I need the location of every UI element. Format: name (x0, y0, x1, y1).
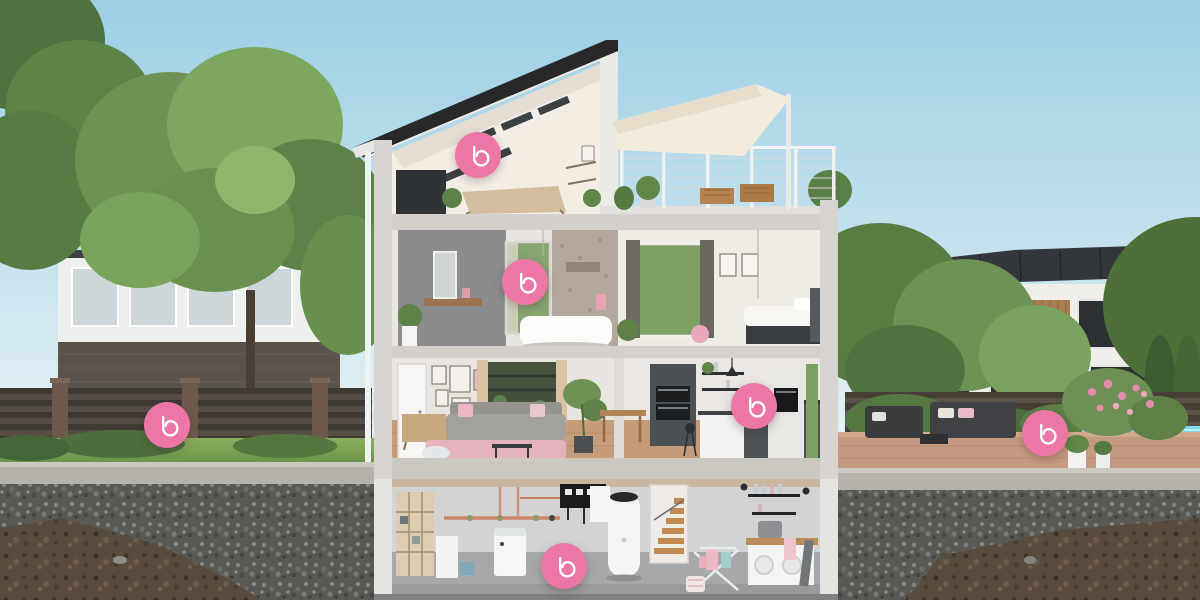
hotspot-terrace-pool[interactable] (1022, 410, 1068, 456)
brand-b-icon (465, 142, 492, 169)
hotspot-attic-studio[interactable] (455, 132, 501, 178)
basement-stairs (650, 485, 688, 563)
outdoor-lounge-furniture (865, 402, 1016, 444)
brand-b-icon (551, 553, 578, 580)
hotspot-kitchen[interactable] (731, 383, 777, 429)
bedroom (617, 230, 820, 346)
smart-home-cutaway-scene (0, 0, 1200, 600)
scene-illustration (0, 0, 1200, 600)
basement-utility (392, 479, 820, 597)
kitchen (600, 358, 822, 460)
living-room (392, 358, 622, 460)
brand-b-icon (741, 393, 768, 420)
brand-b-icon (1032, 420, 1059, 447)
hotspot-garden[interactable] (144, 402, 190, 448)
heat-pump-unit (494, 528, 526, 576)
brand-b-icon (154, 412, 181, 439)
hotspot-bathroom-floor[interactable] (502, 259, 548, 305)
brand-b-icon (512, 269, 539, 296)
hotspot-basement-utility[interactable] (541, 543, 587, 589)
